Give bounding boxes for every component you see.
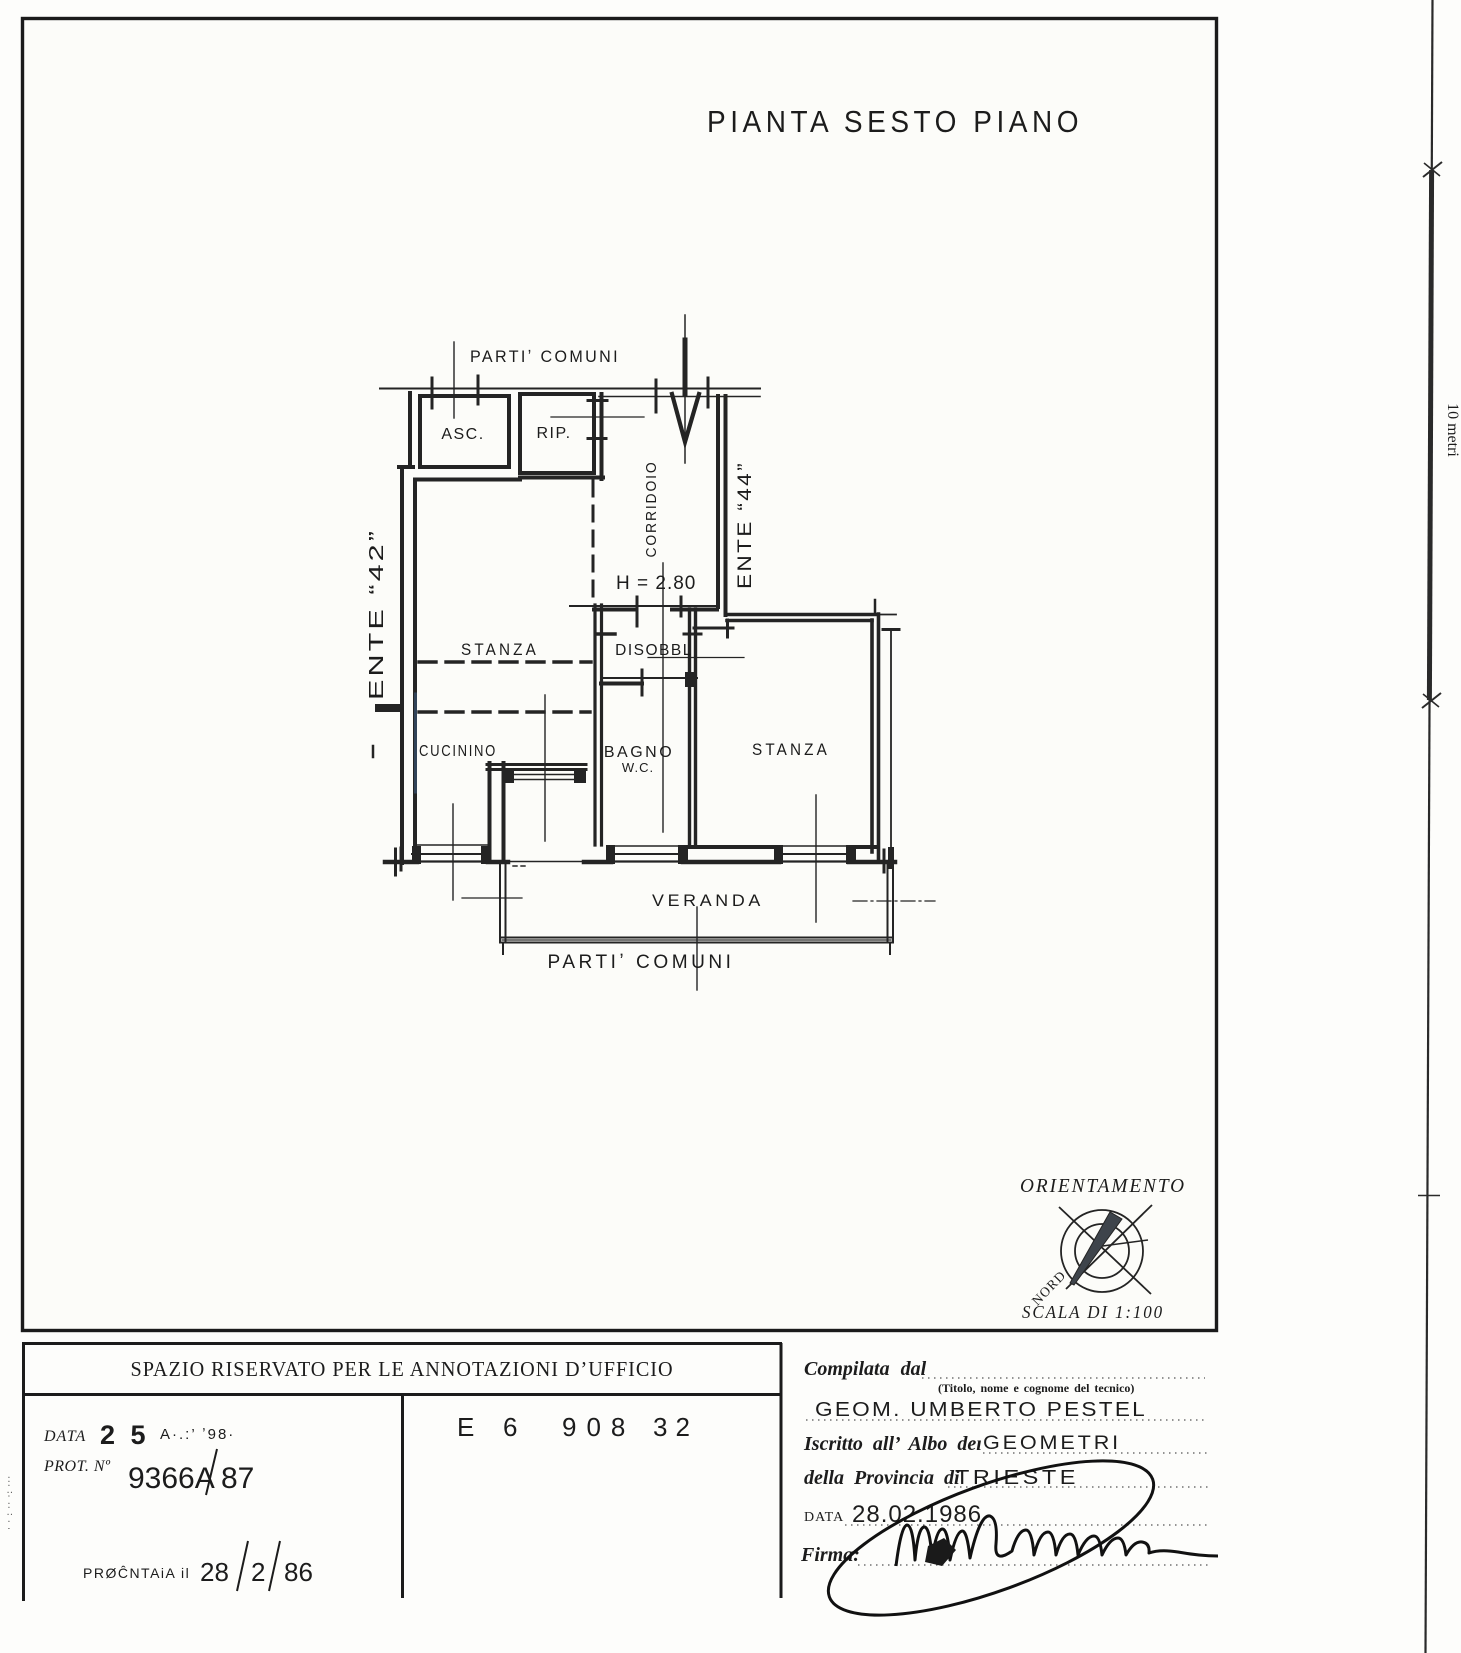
svg-text:RIP.: RIP. [536, 425, 571, 442]
svg-text:W.C.: W.C. [622, 760, 654, 775]
svg-text:PIANTA SESTO PIANO: PIANTA SESTO PIANO [707, 104, 1083, 139]
svg-text:(Titolo, nome e cognome del te: (Titolo, nome e cognome del tecnico) [938, 1381, 1134, 1395]
svg-text:Compilata dal: Compilata dal [804, 1358, 927, 1380]
svg-text:SCALA DI 1:100: SCALA DI 1:100 [1022, 1302, 1164, 1322]
svg-text:STANZA: STANZA [461, 640, 539, 659]
svg-text:DATA: DATA [43, 1428, 86, 1445]
svg-text:TRIESTE: TRIESTE [955, 1467, 1079, 1489]
svg-text:GEOMETRI: GEOMETRI [983, 1433, 1121, 1454]
svg-text:2: 2 [251, 1557, 265, 1587]
svg-text:DATA: DATA [804, 1510, 844, 1525]
svg-text:PARTIʼ COMUNI: PARTIʼ COMUNI [470, 347, 620, 366]
svg-text:· · : ·· ·: ···: · · : ·· ·: ··· [4, 1475, 14, 1530]
svg-text:ORIENTAMENTO: ORIENTAMENTO [1020, 1175, 1186, 1197]
svg-text:PROT. Nº: PROT. Nº [43, 1458, 111, 1475]
svg-text:86: 86 [284, 1557, 313, 1587]
svg-text:28: 28 [200, 1557, 229, 1587]
svg-text:PARTIʼ COMUNI: PARTIʼ COMUNI [548, 952, 735, 973]
svg-text:CUCININO: CUCININO [419, 743, 497, 760]
svg-text:STANZA: STANZA [752, 740, 830, 759]
svg-text:ASC.: ASC. [441, 426, 484, 443]
svg-text:DISOBBL: DISOBBL [615, 642, 693, 659]
svg-text:2 5: 2 5 [100, 1420, 150, 1450]
svg-text:ENTE “42”: ENTE “42” [366, 528, 388, 700]
svg-text:BAGNO: BAGNO [604, 744, 674, 761]
svg-text:ENTE “44”: ENTE “44” [735, 461, 756, 589]
svg-text:10 metri: 10 metri [1444, 403, 1461, 457]
svg-text:SPAZIO RISERVATO PER LE ANNOTA: SPAZIO RISERVATO PER LE ANNOTAZIONI D’UF… [131, 1357, 674, 1381]
svg-text:87: 87 [221, 1462, 254, 1495]
svg-text:della Provincia di: della Provincia di [804, 1467, 960, 1489]
svg-text:PRØĈNTAiA іl: PRØĈNTAiA іl [83, 1565, 190, 1581]
svg-text:A·.:’ ʼ98·: A·.:’ ʼ98· [160, 1426, 235, 1443]
svg-text:9366A: 9366A [128, 1462, 215, 1495]
svg-text:VERANDA: VERANDA [652, 891, 764, 910]
svg-text:H = 2.80: H = 2.80 [616, 573, 696, 594]
svg-text:Iscritto all’ Albo deı: Iscritto all’ Albo deı [803, 1433, 982, 1455]
svg-text:28.02.1986: 28.02.1986 [852, 1501, 982, 1528]
svg-text:CORRIDOIO: CORRIDOIO [643, 461, 660, 558]
svg-text:GEOM. UMBERTO PESTEL: GEOM. UMBERTO PESTEL [815, 1399, 1147, 1421]
